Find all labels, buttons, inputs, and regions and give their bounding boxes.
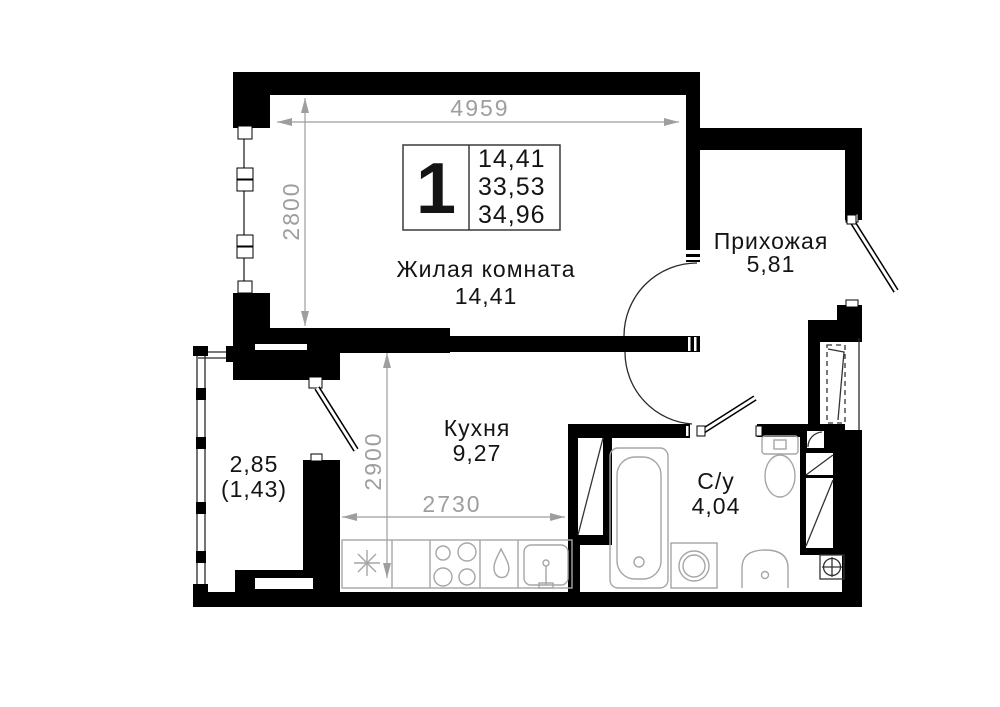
info-room-count: 1 — [416, 149, 456, 229]
info-area-without-balcony: 33,53 — [478, 173, 546, 201]
floor-plan-page: 4959 2800 2900 2730 1 14,41 33,53 34,96 … — [0, 0, 1000, 707]
dim-kitchen-width: 2730 — [422, 491, 481, 517]
living-room-window — [237, 126, 253, 293]
dim-living-width: 4959 — [450, 95, 509, 121]
room-area-living: 14,41 — [455, 283, 518, 309]
dimension-kitchen-vertical: 2900 — [360, 353, 391, 578]
floor-plan-drawing: 4959 2800 2900 2730 1 14,41 33,53 34,96 … — [0, 0, 1000, 707]
room-area-balcony: 2,85 — [230, 451, 279, 477]
room-label-kitchen: Кухня — [444, 415, 511, 441]
room-label-living: Жилая комната — [396, 256, 575, 282]
stove-icon — [434, 543, 476, 586]
entrance-door — [847, 215, 896, 291]
door-arc-kitchen — [625, 352, 692, 424]
water-drop-icon — [494, 549, 509, 578]
wall-slot-bottom — [255, 578, 313, 589]
bathroom-door — [697, 398, 755, 436]
fridge-star-icon — [354, 550, 380, 576]
dimension-top: 4959 — [277, 95, 679, 126]
bathroom-sink-icon — [742, 550, 788, 588]
info-living-area: 14,41 — [478, 145, 546, 173]
toilet-icon — [762, 436, 798, 497]
dim-living-depth: 2800 — [278, 181, 304, 240]
room-area-bathroom: 4,04 — [692, 493, 741, 519]
info-box: 1 14,41 33,53 34,96 — [403, 145, 560, 230]
floor-drain-icon — [820, 555, 844, 579]
dimension-kitchen-horizontal: 2730 — [342, 491, 565, 521]
kitchen-counter — [342, 540, 572, 588]
dimension-left: 2800 — [278, 98, 309, 326]
dim-kitchen-depth: 2900 — [360, 431, 386, 490]
balcony-door — [317, 388, 356, 450]
info-total-area: 34,96 — [478, 201, 546, 229]
bathtub — [610, 448, 668, 588]
washing-machine-icon — [671, 543, 717, 588]
door-arc-living-room — [624, 263, 697, 336]
kitchen-sink-icon — [524, 545, 568, 588]
room-label-bathroom: С/у — [697, 468, 735, 494]
wardrobe — [827, 345, 845, 423]
room-area-hallway: 5,81 — [747, 251, 796, 277]
room-area-balcony-coeff: (1,43) — [221, 476, 287, 502]
room-area-kitchen: 9,27 — [453, 440, 502, 466]
wall-slot-top — [255, 344, 307, 350]
